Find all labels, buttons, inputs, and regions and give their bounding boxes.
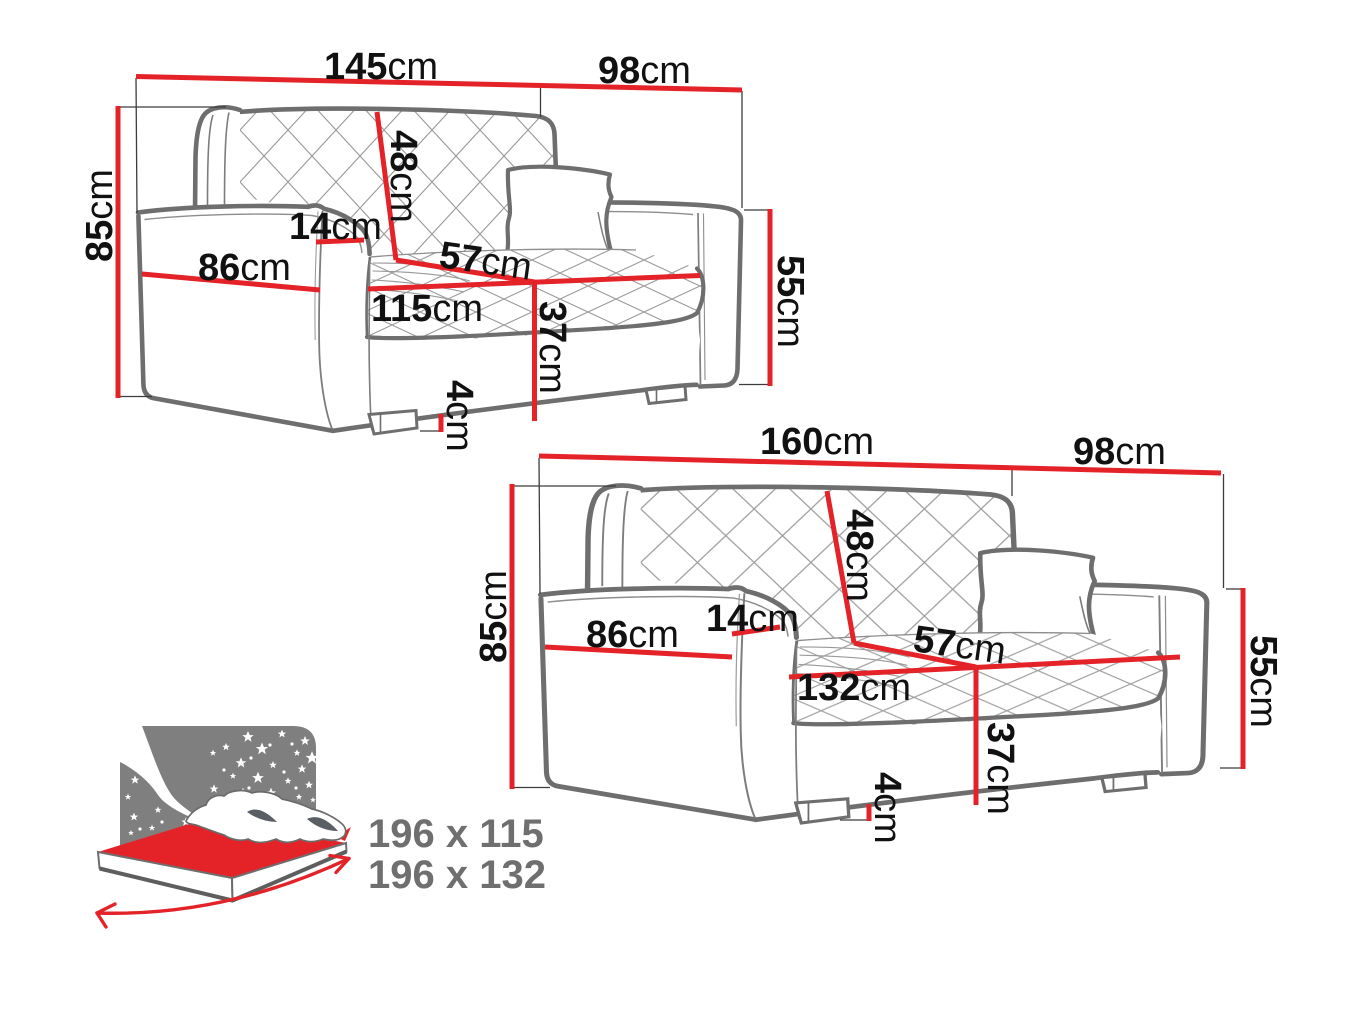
svg-text:86cm: 86cm — [586, 614, 679, 656]
svg-text:14cm: 14cm — [289, 206, 382, 248]
svg-text:86cm: 86cm — [198, 247, 291, 289]
svg-text:4cm: 4cm — [438, 380, 480, 452]
svg-text:48cm: 48cm — [838, 509, 880, 602]
svg-text:37cm: 37cm — [979, 722, 1021, 815]
svg-text:160cm: 160cm — [760, 421, 874, 463]
svg-text:55cm: 55cm — [1242, 635, 1284, 728]
svg-text:4cm: 4cm — [866, 772, 908, 844]
svg-text:98cm: 98cm — [598, 50, 691, 92]
svg-text:85cm: 85cm — [473, 570, 515, 663]
svg-text:55cm: 55cm — [769, 255, 811, 348]
svg-text:37cm: 37cm — [531, 301, 573, 394]
svg-text:196 x 132: 196 x 132 — [368, 853, 546, 897]
svg-text:14cm: 14cm — [706, 598, 799, 640]
svg-text:115cm: 115cm — [371, 288, 483, 330]
svg-text:48cm: 48cm — [382, 130, 424, 223]
svg-text:145cm: 145cm — [324, 46, 438, 88]
svg-text:196 x 115: 196 x 115 — [368, 812, 544, 856]
svg-text:132cm: 132cm — [797, 667, 911, 709]
svg-text:98cm: 98cm — [1073, 431, 1166, 473]
svg-text:85cm: 85cm — [79, 169, 121, 262]
